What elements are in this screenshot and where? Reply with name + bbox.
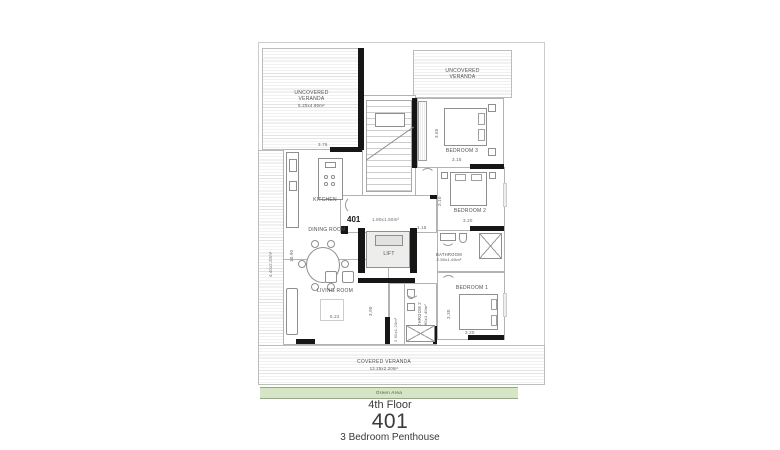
bedroom2-bed [450, 172, 487, 206]
kitchen-sink [289, 159, 297, 172]
lift-machine [375, 235, 403, 246]
bathroom2-shower [406, 325, 435, 342]
nightstand [488, 148, 496, 156]
dining-height-dim: 10.90 [289, 236, 294, 262]
pillow [478, 129, 485, 141]
corridor-dims: 2.60x1.20m² [393, 296, 398, 342]
pillow [491, 299, 497, 310]
dining-chair [341, 260, 349, 268]
title-subtitle: 3 Bedroom Penthouse [0, 432, 780, 443]
kitchen-appliance [289, 181, 297, 191]
veranda-covered: COVERED VERANDA 13.25x2.20m² [258, 345, 545, 385]
bedroom1-width-dim: 3.20 [465, 330, 475, 335]
veranda-side-left: 4.40x2.20m² [258, 150, 285, 346]
veranda-left-dims: 5.20x4.90m² [298, 103, 325, 109]
stair-break-line [366, 126, 414, 160]
green-area: Green Area [260, 387, 518, 399]
veranda-uncovered-right: UNCOVERED VERANDA [413, 50, 512, 98]
bedroom3-wardrobe [418, 101, 427, 161]
veranda-right-labelbox: UNCOVERED VERANDA [414, 51, 511, 97]
burner-icon [331, 182, 335, 186]
burner-icon [324, 182, 328, 186]
subtitle-text: 3 Bedroom Penthouse [340, 432, 440, 443]
dining-chair [298, 260, 306, 268]
wall-entry-right [430, 195, 437, 199]
entry-door-arc [345, 196, 363, 214]
wall-bed3-bed2 [470, 164, 504, 169]
veranda-uncovered-left: UNCOVERED VERANDA 5.20x4.90m² [262, 48, 361, 150]
bathroom-toilet [459, 233, 467, 243]
armchair [325, 271, 337, 283]
lift: LIFT [366, 231, 410, 268]
bathroom2-sink [407, 303, 415, 311]
bedroom3-height-dim: 3.65 [434, 120, 439, 138]
dining-chair [311, 240, 319, 248]
pillow [455, 174, 466, 181]
kitchen-label: KITCHEN [303, 197, 347, 204]
kitchen-island [318, 158, 343, 200]
nightstand [441, 172, 448, 179]
bedroom2-width-dim: 3.20 [463, 218, 473, 223]
bathroom-labelbox: BATHROOM 2.50x1.60m² [432, 252, 466, 263]
bedroom2-label: BEDROOM 2 [447, 208, 493, 215]
floorplan-sheet: UNCOVERED VERANDA 5.20x4.90m² 4.40x2.20m… [0, 0, 780, 450]
stair-landing [375, 113, 405, 127]
pillow [471, 174, 482, 181]
wall-living-bottom [296, 339, 315, 344]
unit-number-label: 401 [346, 215, 361, 224]
pillow [478, 113, 485, 125]
bathroom-door-arc [441, 232, 455, 246]
wall-stair-left [358, 48, 364, 150]
living-label: LIVING ROOM [311, 288, 359, 295]
living-height-dim: 3.90 [368, 296, 373, 316]
title-unit: 401 [0, 410, 780, 434]
bedroom3-width-dim: 3.15 [452, 157, 462, 162]
bedroom1-label: BEDROOM 1 [450, 285, 494, 292]
veranda-left-label: UNCOVERED VERANDA [289, 90, 335, 103]
bedroom1-window [503, 293, 507, 317]
living-width-dim: 5.22 [330, 314, 340, 319]
wall-lift-left [358, 228, 365, 273]
wall-lift-right [410, 228, 417, 273]
wall-kitchen-top [330, 147, 362, 152]
wall-bedroom3-left [412, 98, 417, 168]
green-area-label: Green Area [376, 390, 402, 396]
bathroom-shower [479, 233, 502, 259]
bedroom3-bed [444, 108, 487, 146]
veranda-right-label: UNCOVERED VERANDA [442, 68, 484, 81]
unit-text: 401 [372, 410, 409, 433]
bedroom3-label: BEDROOM 3 [442, 148, 482, 155]
bathroom2-door-arc [406, 285, 419, 298]
lift-label: LIFT [377, 251, 401, 258]
entry-dims: 1.80x1.50m² [372, 217, 399, 222]
wall-lift-bottom [358, 278, 415, 283]
kitchen-width-dim: 3.75 [318, 142, 328, 147]
kitchen-counter [286, 152, 299, 228]
green-area-labelbox: Green Area [260, 388, 518, 398]
veranda-covered-dims: 13.25x2.20m² [370, 366, 399, 371]
hall-width-dim: 1.15 [417, 225, 427, 230]
veranda-covered-labelbox: COVERED VERANDA 13.25x2.20m² [319, 346, 449, 384]
island-sink [325, 162, 336, 168]
wall-bed1-bottom [468, 335, 504, 340]
dining-label: DINING ROOM [303, 227, 351, 234]
dining-chair [327, 240, 335, 248]
wall-bed2-bath [470, 226, 504, 231]
bedroom1-bed [459, 294, 498, 330]
bedroom1-door-arc [441, 275, 456, 290]
nightstand [488, 104, 496, 112]
bedroom2-window [503, 183, 507, 207]
burner-icon [331, 175, 335, 179]
wall-corridor-left [385, 317, 390, 344]
bedroom1-height-dim: 3.30 [446, 303, 451, 319]
bathroom-dims: 2.50x1.60m² [437, 257, 462, 262]
sofa [286, 288, 298, 335]
staircase [366, 100, 412, 192]
veranda-left-labelbox: UNCOVERED VERANDA 5.20x4.90m² [263, 49, 360, 149]
armchair [342, 271, 354, 283]
veranda-side-dims: 4.40x2.20m² [268, 219, 273, 277]
burner-icon [324, 175, 328, 179]
bedroom3-door-arc [420, 168, 435, 183]
nightstand [489, 172, 496, 179]
bedroom2-height-dim: 3.10 [437, 190, 442, 206]
pillow [491, 315, 497, 326]
